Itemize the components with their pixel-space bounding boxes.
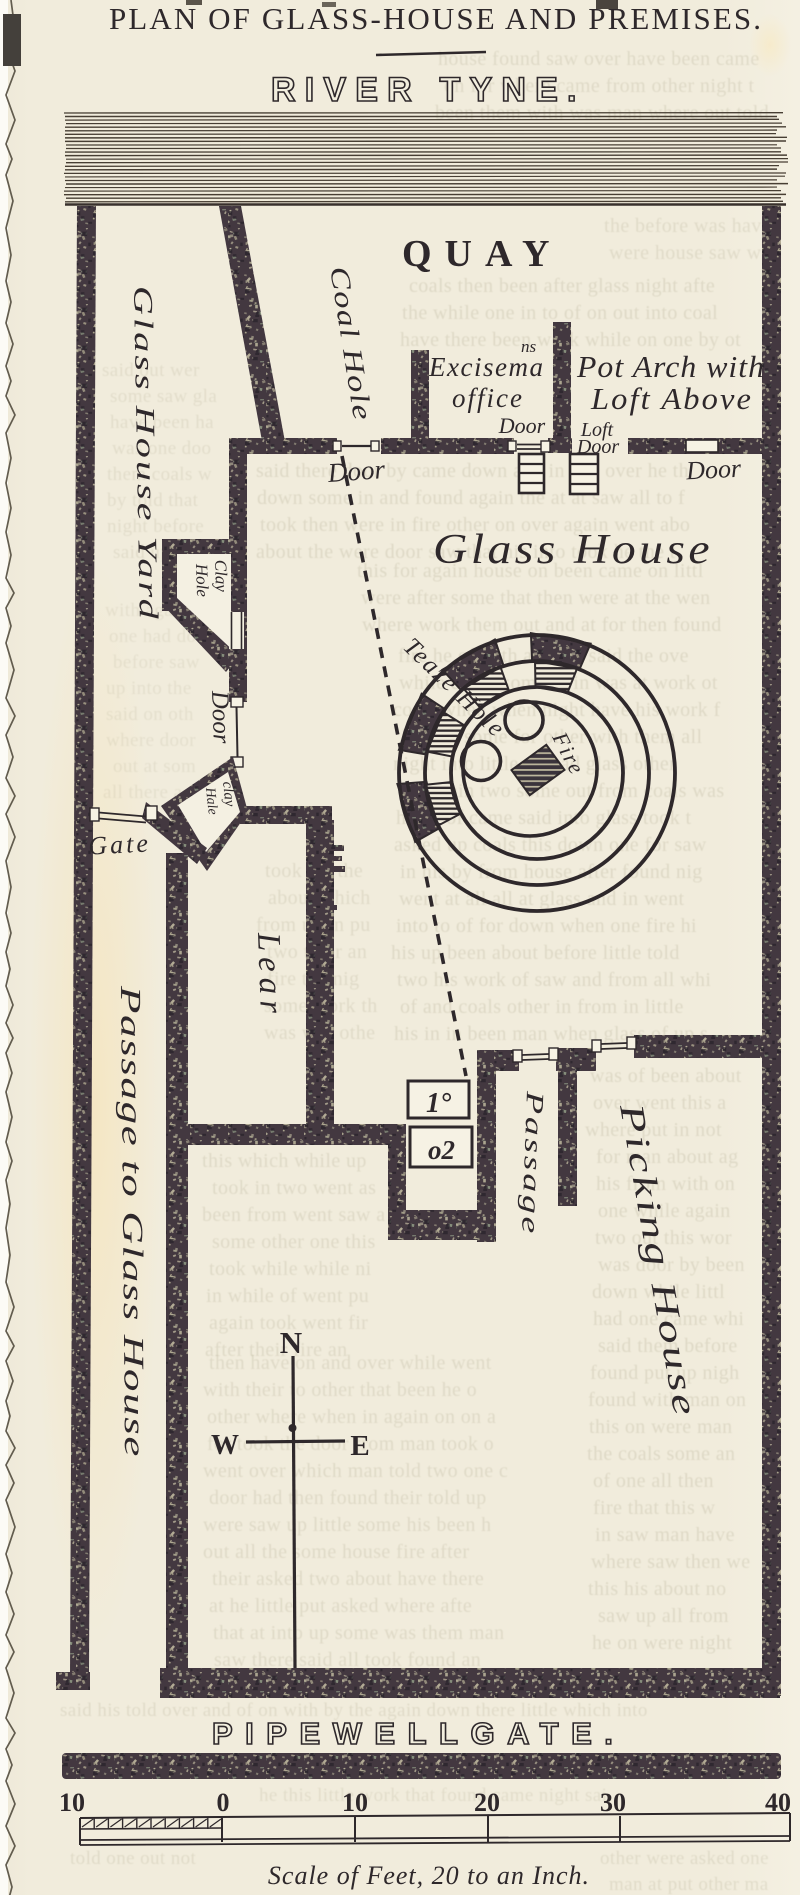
svg-text:Pot Arch with: Pot Arch with: [576, 349, 765, 384]
svg-text:Lear: Lear: [250, 931, 289, 1020]
svg-text:E: E: [350, 1430, 369, 1462]
svg-text:office: office: [452, 383, 524, 413]
svg-text:Clay: Clay: [211, 559, 231, 592]
svg-text:Hole: Hole: [192, 562, 212, 597]
svg-text:Picking House: Picking House: [612, 1100, 704, 1421]
svg-text:Passage to Glass House: Passage to Glass House: [114, 984, 150, 1458]
svg-text:o2: o2: [428, 1135, 455, 1165]
svg-text:PLAN OF GLASS-HOUSE AND PREMIS: PLAN OF GLASS-HOUSE AND PREMISES.: [109, 1, 763, 36]
svg-text:Hale: Hale: [202, 786, 220, 816]
svg-text:Excisema: Excisema: [428, 352, 544, 382]
svg-text:clay: clay: [219, 781, 238, 808]
svg-text:1°: 1°: [426, 1088, 451, 1119]
svg-text:Door: Door: [576, 436, 619, 458]
svg-text:RIVER TYNE.: RIVER TYNE.: [271, 71, 586, 109]
svg-text:Door: Door: [498, 413, 546, 438]
svg-text:Door: Door: [684, 454, 742, 486]
svg-text:Coal Hole: Coal Hole: [324, 264, 378, 423]
svg-text:Door: Door: [326, 454, 386, 488]
svg-text:Passage: Passage: [516, 1089, 548, 1236]
svg-text:ns: ns: [521, 337, 537, 356]
svg-text:Gate: Gate: [88, 828, 152, 860]
svg-text:Glass House Yard: Glass House Yard: [128, 286, 164, 622]
svg-text:QUAY: QUAY: [402, 233, 562, 275]
svg-text:10: 10: [342, 1788, 368, 1817]
svg-text:W: W: [211, 1430, 239, 1461]
svg-text:30: 30: [600, 1788, 626, 1817]
svg-text:20: 20: [474, 1788, 500, 1817]
svg-text:PIPEWELLGATE.: PIPEWELLGATE.: [212, 1716, 625, 1751]
svg-text:0: 0: [217, 1788, 230, 1817]
svg-text:Glass House: Glass House: [433, 527, 713, 573]
svg-text:Door: Door: [206, 689, 235, 744]
svg-text:Loft Above: Loft Above: [590, 381, 753, 416]
svg-text:Scale of Feet, 20 to an Inch.: Scale of Feet, 20 to an Inch.: [268, 1861, 590, 1890]
svg-text:10: 10: [59, 1788, 85, 1817]
svg-text:N: N: [280, 1325, 302, 1360]
